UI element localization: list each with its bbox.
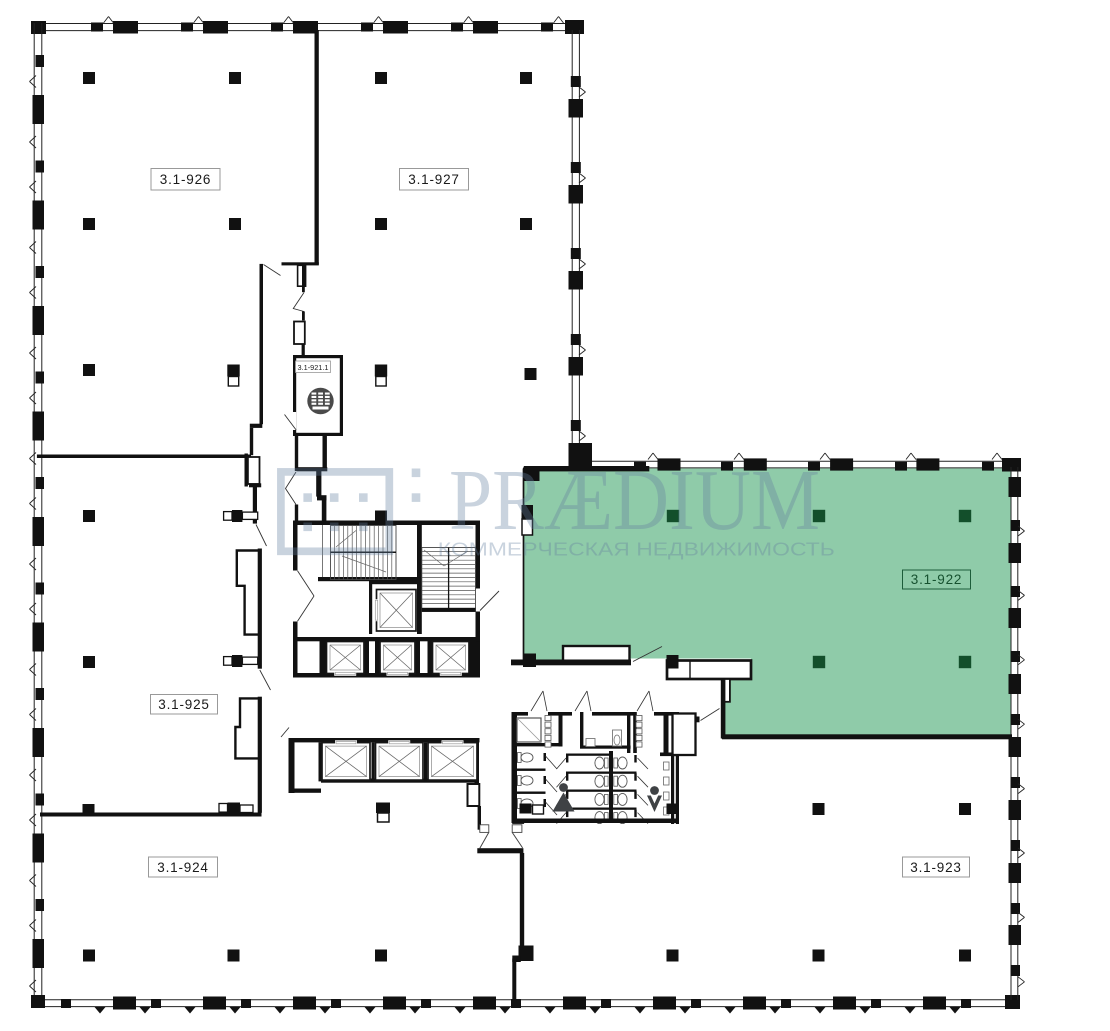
svg-text:3.1-921.1: 3.1-921.1 [298, 363, 329, 372]
svg-text:3.1-922: 3.1-922 [911, 572, 962, 587]
svg-text:3.1-926: 3.1-926 [160, 172, 211, 187]
svg-text:3.1-925: 3.1-925 [158, 697, 209, 712]
svg-text:3.1-923: 3.1-923 [910, 860, 961, 875]
svg-text:3.1-924: 3.1-924 [157, 860, 208, 875]
svg-text:PRÆDIUM: PRÆDIUM [449, 451, 820, 548]
svg-text:КОММЕРЧЕСКАЯ НЕДВИЖИМОСТЬ: КОММЕРЧЕСКАЯ НЕДВИЖИМОСТЬ [438, 539, 835, 560]
svg-text:3.1-927: 3.1-927 [408, 172, 459, 187]
